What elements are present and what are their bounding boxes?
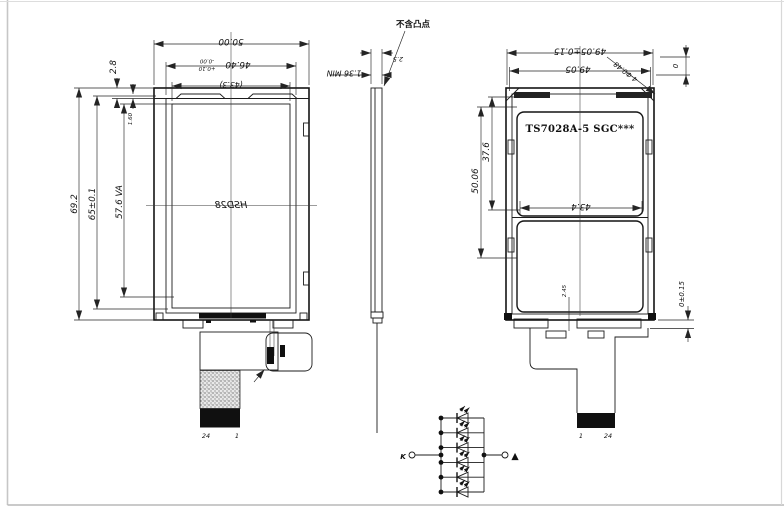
back-pin-label-right: 24	[604, 432, 612, 440]
back-pin-label-left: 1	[579, 432, 583, 440]
front-dimensions: 50.00 46.40 -0.00 +0.10 (43.3) 2.8 1.60	[70, 36, 309, 320]
back-fpc-tail: 1 24	[530, 328, 648, 440]
dim-back-bottom-tol: 0±0.15	[678, 281, 686, 307]
anode-symbol: ▲	[511, 451, 519, 462]
back-view: TS7028A-5 SGC*** 1 24 49.05±0.15 49.05 4…	[471, 45, 694, 440]
front-pin-label-right: 1	[235, 432, 239, 440]
dim-back-width-tol: 49.05±0.15	[554, 46, 607, 56]
dim-front-height-outer: 69.2	[70, 194, 80, 214]
dim-back-height-inner: 37.6	[482, 142, 492, 162]
fpc-component	[280, 345, 285, 357]
part-number-label: TS7028A-5 SGC***	[525, 124, 635, 135]
dim-front-width-bezel: 46.40	[225, 59, 251, 69]
dim-back-height-outer: 50.06	[471, 168, 481, 194]
fpc-connector-front	[200, 409, 240, 428]
front-pin-label-left: 24	[202, 432, 210, 440]
dim-side-thickness-min: 1.36 MIN	[326, 69, 361, 78]
front-view: 24 1 50.00 46.40 -0.00 +0.10 (43.3)	[70, 32, 317, 440]
dim-front-width-outer: 50.00	[218, 36, 244, 46]
led-branch	[439, 421, 484, 438]
led-branch	[439, 436, 484, 453]
led-branch	[439, 465, 484, 482]
dim-back-hole-callout: 4-Φ0.48	[612, 59, 639, 83]
dim-back-window-width: 43.4	[571, 201, 591, 211]
dim-front-top-margin: 2.8	[109, 60, 119, 74]
engineering-drawing-sheet: 24 1 50.00 46.40 -0.00 +0.10 (43.3)	[0, 0, 784, 519]
side-view: 2.5 1.36 MIN 不含凸点	[326, 19, 430, 433]
dim-front-width-tol-upper: -0.00	[199, 58, 214, 64]
dim-back-width: 49.05	[565, 64, 591, 74]
dim-front-height-bezel: 65±0.1	[88, 188, 98, 221]
led-branch	[439, 406, 484, 423]
dim-front-height-va: 57.6 VA	[115, 185, 125, 219]
dim-back-offset: 2.45	[562, 284, 568, 297]
front-top-tab	[176, 94, 225, 99]
dim-front-width-ref: (43.3)	[219, 80, 242, 89]
led-branch	[439, 480, 484, 497]
fpc-component	[267, 347, 274, 364]
back-bezel-outline	[504, 46, 656, 328]
cathode-label: K	[400, 452, 407, 461]
led-branch	[439, 450, 484, 467]
dim-back-zero: 0	[672, 63, 680, 68]
anode-terminal	[502, 452, 508, 458]
front-bezel-outline	[146, 32, 317, 328]
cathode-terminal	[409, 452, 415, 458]
dim-front-width-tol-lower: +0.10	[198, 65, 215, 71]
led-backlight-circuit: K ▲	[400, 406, 519, 497]
fpc-connector-back	[577, 413, 615, 428]
back-top-tab	[514, 92, 550, 98]
front-fpc-tail: 24 1	[200, 320, 312, 440]
driver-ic-bar	[199, 313, 266, 319]
back-dimensions: 49.05±0.15 49.05 4-Φ0.48 0 50.06	[471, 45, 694, 342]
back-top-tab	[616, 92, 652, 98]
front-top-tab	[248, 94, 297, 99]
dim-front-tab-height: 1.60	[128, 112, 134, 125]
lcd-module-drawing: 24 1 50.00 46.40 -0.00 +0.10 (43.3)	[0, 0, 784, 519]
led-terminals: K ▲	[400, 451, 519, 462]
panel-print-label: HSD28	[215, 200, 248, 211]
side-note-chinese: 不含凸点	[396, 19, 431, 30]
fpc-stiffener	[200, 371, 240, 409]
sheet-frame	[0, 0, 784, 505]
side-dimensions: 2.5 1.36 MIN 不含凸点	[326, 19, 430, 86]
